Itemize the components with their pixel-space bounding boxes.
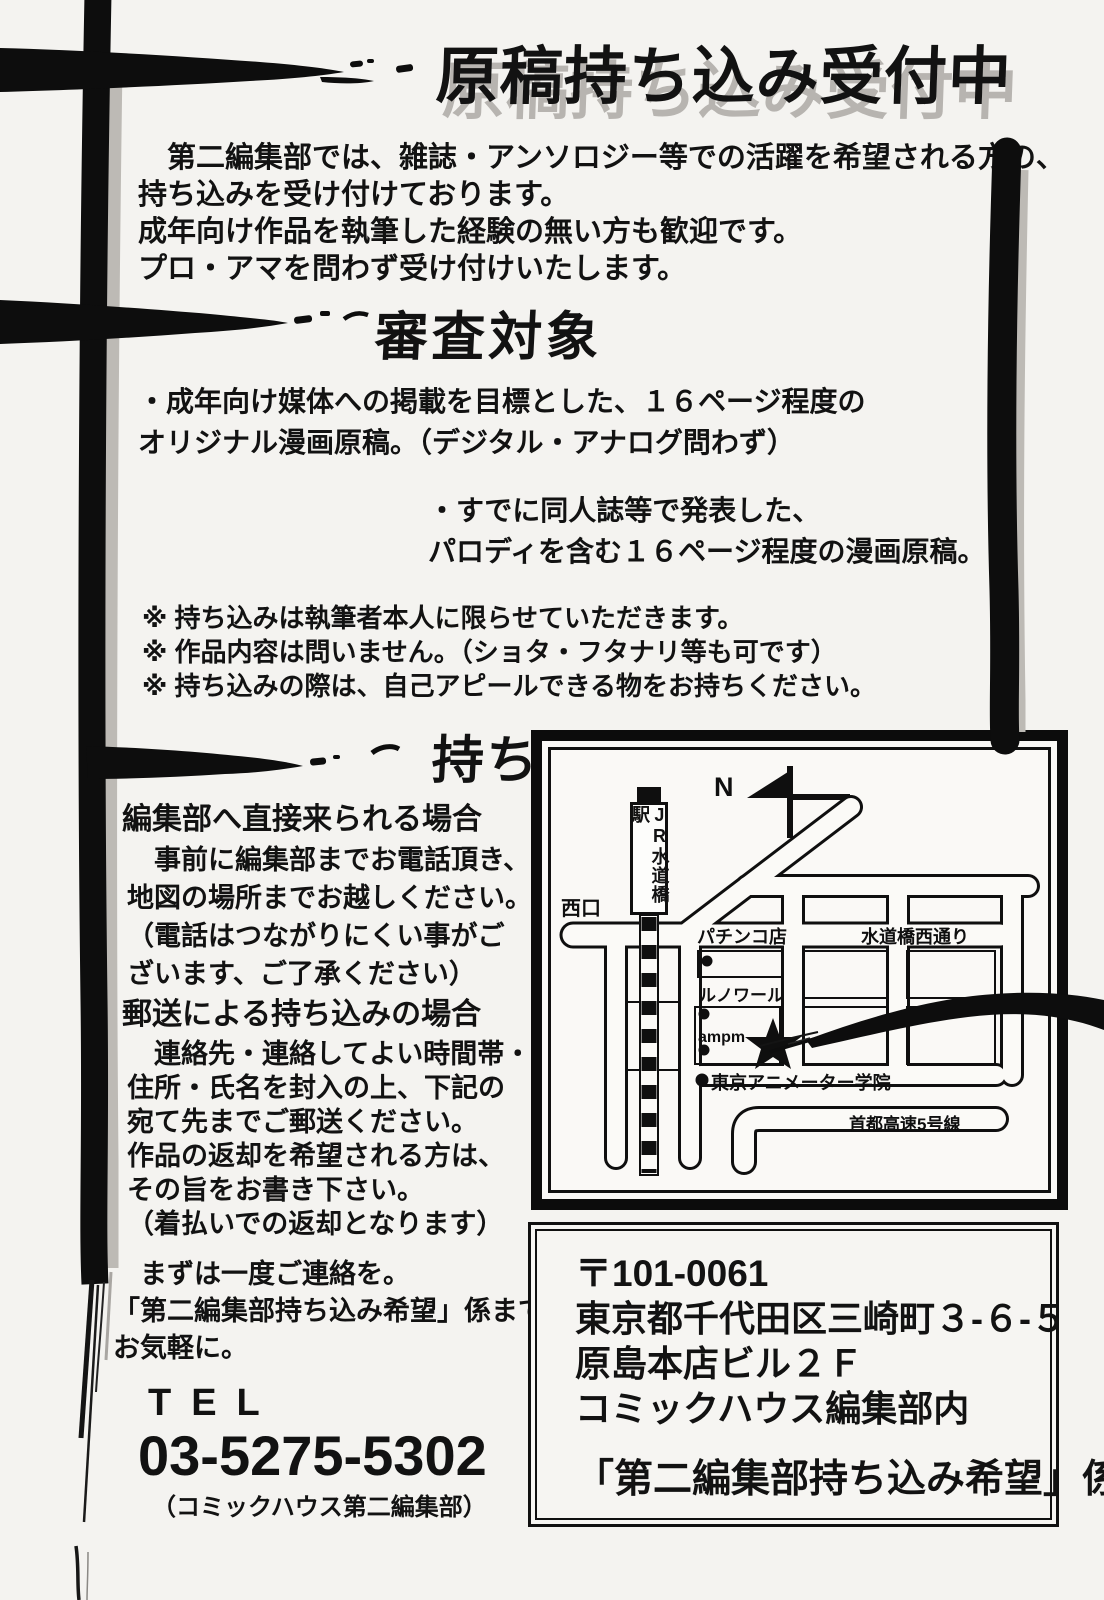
- body-line: その旨をお書き下さい。: [127, 1173, 531, 1207]
- access-map: N JR水道橋駅 西口 パチンコ店 水道橋西通り ルノワール ampm 東京アニ…: [531, 730, 1068, 1210]
- review-target-bullet-parody: ・すでに同人誌等で発表した、 パロディを含む１６ページ程度の漫画原稿。: [428, 490, 985, 572]
- subheading-visit-in-person: 編集部へ直接来られる場合: [122, 794, 482, 838]
- mailing-address-inner-frame: 〒101-0061 東京都千代田区三崎町３-６-５ 原島本店ビル２Ｆ コミックハ…: [535, 1229, 1052, 1520]
- body-line: 事前に編集部までお電話頂き、: [127, 841, 532, 879]
- body-line: 連絡先・連絡してよい時間帯・: [127, 1037, 531, 1071]
- bullet-line: ・すでに同人誌等で発表した、: [428, 490, 985, 531]
- animator-school-label: 東京アニメーター学院: [711, 1069, 891, 1095]
- address-line: 東京都千代田区三崎町３-６-５: [575, 1296, 1050, 1341]
- contact-line: まずは一度ご連絡を。: [113, 1256, 545, 1293]
- bullet-line: オリジナル漫画原稿。（デジタル・アナログ問わず）: [138, 422, 865, 463]
- body-line: ざいます、ご了承ください）: [127, 955, 532, 993]
- suidobashi-west-street-label: 水道橋西通り: [861, 923, 969, 949]
- body-line: 作品の返却を希望される方は、: [127, 1139, 531, 1173]
- intro-paragraph: 第二編集部では、雑誌・アンソロジー等での活躍を希望される方の、 持ち込みを受け付…: [138, 140, 1065, 288]
- body-line: （電話はつながりにくい事がご: [127, 917, 532, 955]
- subheading-submit-by-mail: 郵送による持ち込みの場合: [122, 989, 481, 1033]
- visit-in-person-body: 事前に編集部までお電話頂き、 地図の場所までお越しください。 （電話はつながりに…: [127, 841, 532, 993]
- note-line: ※ 作品内容は問いません。（ショタ・フタナリ等も可です）: [142, 635, 876, 669]
- tel-label: TEL: [148, 1382, 280, 1425]
- body-line: 地図の場所までお越しください。: [127, 879, 532, 917]
- access-map-content: N JR水道橋駅 西口 パチンコ店 水道橋西通り ルノワール ampm 東京アニ…: [551, 750, 1048, 1190]
- mailing-address-box: 〒101-0061 東京都千代田区三崎町３-６-５ 原島本店ビル２Ｆ コミックハ…: [528, 1222, 1059, 1527]
- ampm-label: ampm: [698, 1029, 745, 1047]
- address-line: 原島本店ビル２Ｆ: [575, 1341, 1050, 1386]
- address-attention-line: 「第二編集部持ち込み希望」係: [575, 1457, 1050, 1502]
- west-exit-label: 西口: [561, 892, 601, 921]
- intro-line: プロ・アマを問わず受け付けいたします。: [138, 251, 1065, 288]
- body-line: 住所・氏名を封入の上、下記の: [127, 1071, 531, 1105]
- contact-line: 「第二編集部持ち込み希望」係まで: [113, 1293, 545, 1330]
- review-target-bullet-original: ・成年向け媒体への掲載を目標とした、１６ページ程度の オリジナル漫画原稿。（デジ…: [138, 381, 865, 463]
- note-line: ※ 持ち込みは執筆者本人に限らせていただきます。: [142, 601, 876, 635]
- flyer-page: 原稿持ち込み受付中 第二編集部では、雑誌・アンソロジー等での活躍を希望される方の…: [0, 0, 1104, 1600]
- contact-line: お気軽に。: [113, 1330, 545, 1367]
- contact-invitation: まずは一度ご連絡を。 「第二編集部持ち込み希望」係まで お気軽に。: [113, 1256, 545, 1367]
- note-line: ※ 持ち込みの際は、自己アピールできる物をお持ちください。: [142, 669, 876, 703]
- intro-line: 第二編集部では、雑誌・アンソロジー等での活躍を希望される方の、: [138, 140, 1065, 177]
- submission-notes: ※ 持ち込みは執筆者本人に限らせていただきます。 ※ 作品内容は問いません。（シ…: [142, 601, 876, 703]
- access-map-inner-frame: N JR水道橋駅 西口 パチンコ店 水道橋西通り ルノワール ampm 東京アニ…: [548, 747, 1051, 1193]
- submit-by-mail-body: 連絡先・連絡してよい時間帯・ 住所・氏名を封入の上、下記の 宛て先までご郵送くだ…: [127, 1037, 531, 1241]
- body-line: （着払いでの返却となります）: [127, 1207, 531, 1241]
- tel-number: 03-5275-5302: [138, 1423, 487, 1488]
- access-map-graphics: [551, 750, 1048, 1190]
- bullet-line: ・成年向け媒体への掲載を目標とした、１６ページ程度の: [138, 381, 865, 422]
- lower-horizontal-brush-stroke: [86, 746, 399, 779]
- intro-line: 持ち込みを受け付けております。: [138, 177, 1065, 214]
- bullet-line: パロディを含む１６ページ程度の漫画原稿。: [428, 531, 985, 572]
- middle-horizontal-brush-stroke: [0, 300, 368, 344]
- station-label-box: JR水道橋駅: [630, 802, 668, 915]
- top-horizontal-brush-stroke: [0, 48, 413, 92]
- left-vertical-brush-stroke: [76, 0, 111, 1600]
- renoir-label: ルノワール: [699, 981, 784, 1006]
- body-line: 宛て先までご郵送ください。: [127, 1105, 531, 1139]
- tel-note: （コミックハウス第二編集部）: [152, 1487, 487, 1522]
- compass-n-label: N: [714, 772, 734, 803]
- section-heading-review-target: 審査対象: [373, 295, 605, 371]
- postal-code: 〒101-0061: [575, 1251, 1050, 1296]
- pachinko-label: パチンコ店: [697, 923, 787, 949]
- address-line: コミックハウス編集部内: [575, 1386, 1050, 1431]
- intro-line: 成年向け作品を執筆した経験の無い方も歓迎です。: [138, 214, 1065, 251]
- expressway-label: 首都高速5号線: [849, 1110, 960, 1135]
- page-title: 原稿持ち込み受付中: [434, 26, 1013, 117]
